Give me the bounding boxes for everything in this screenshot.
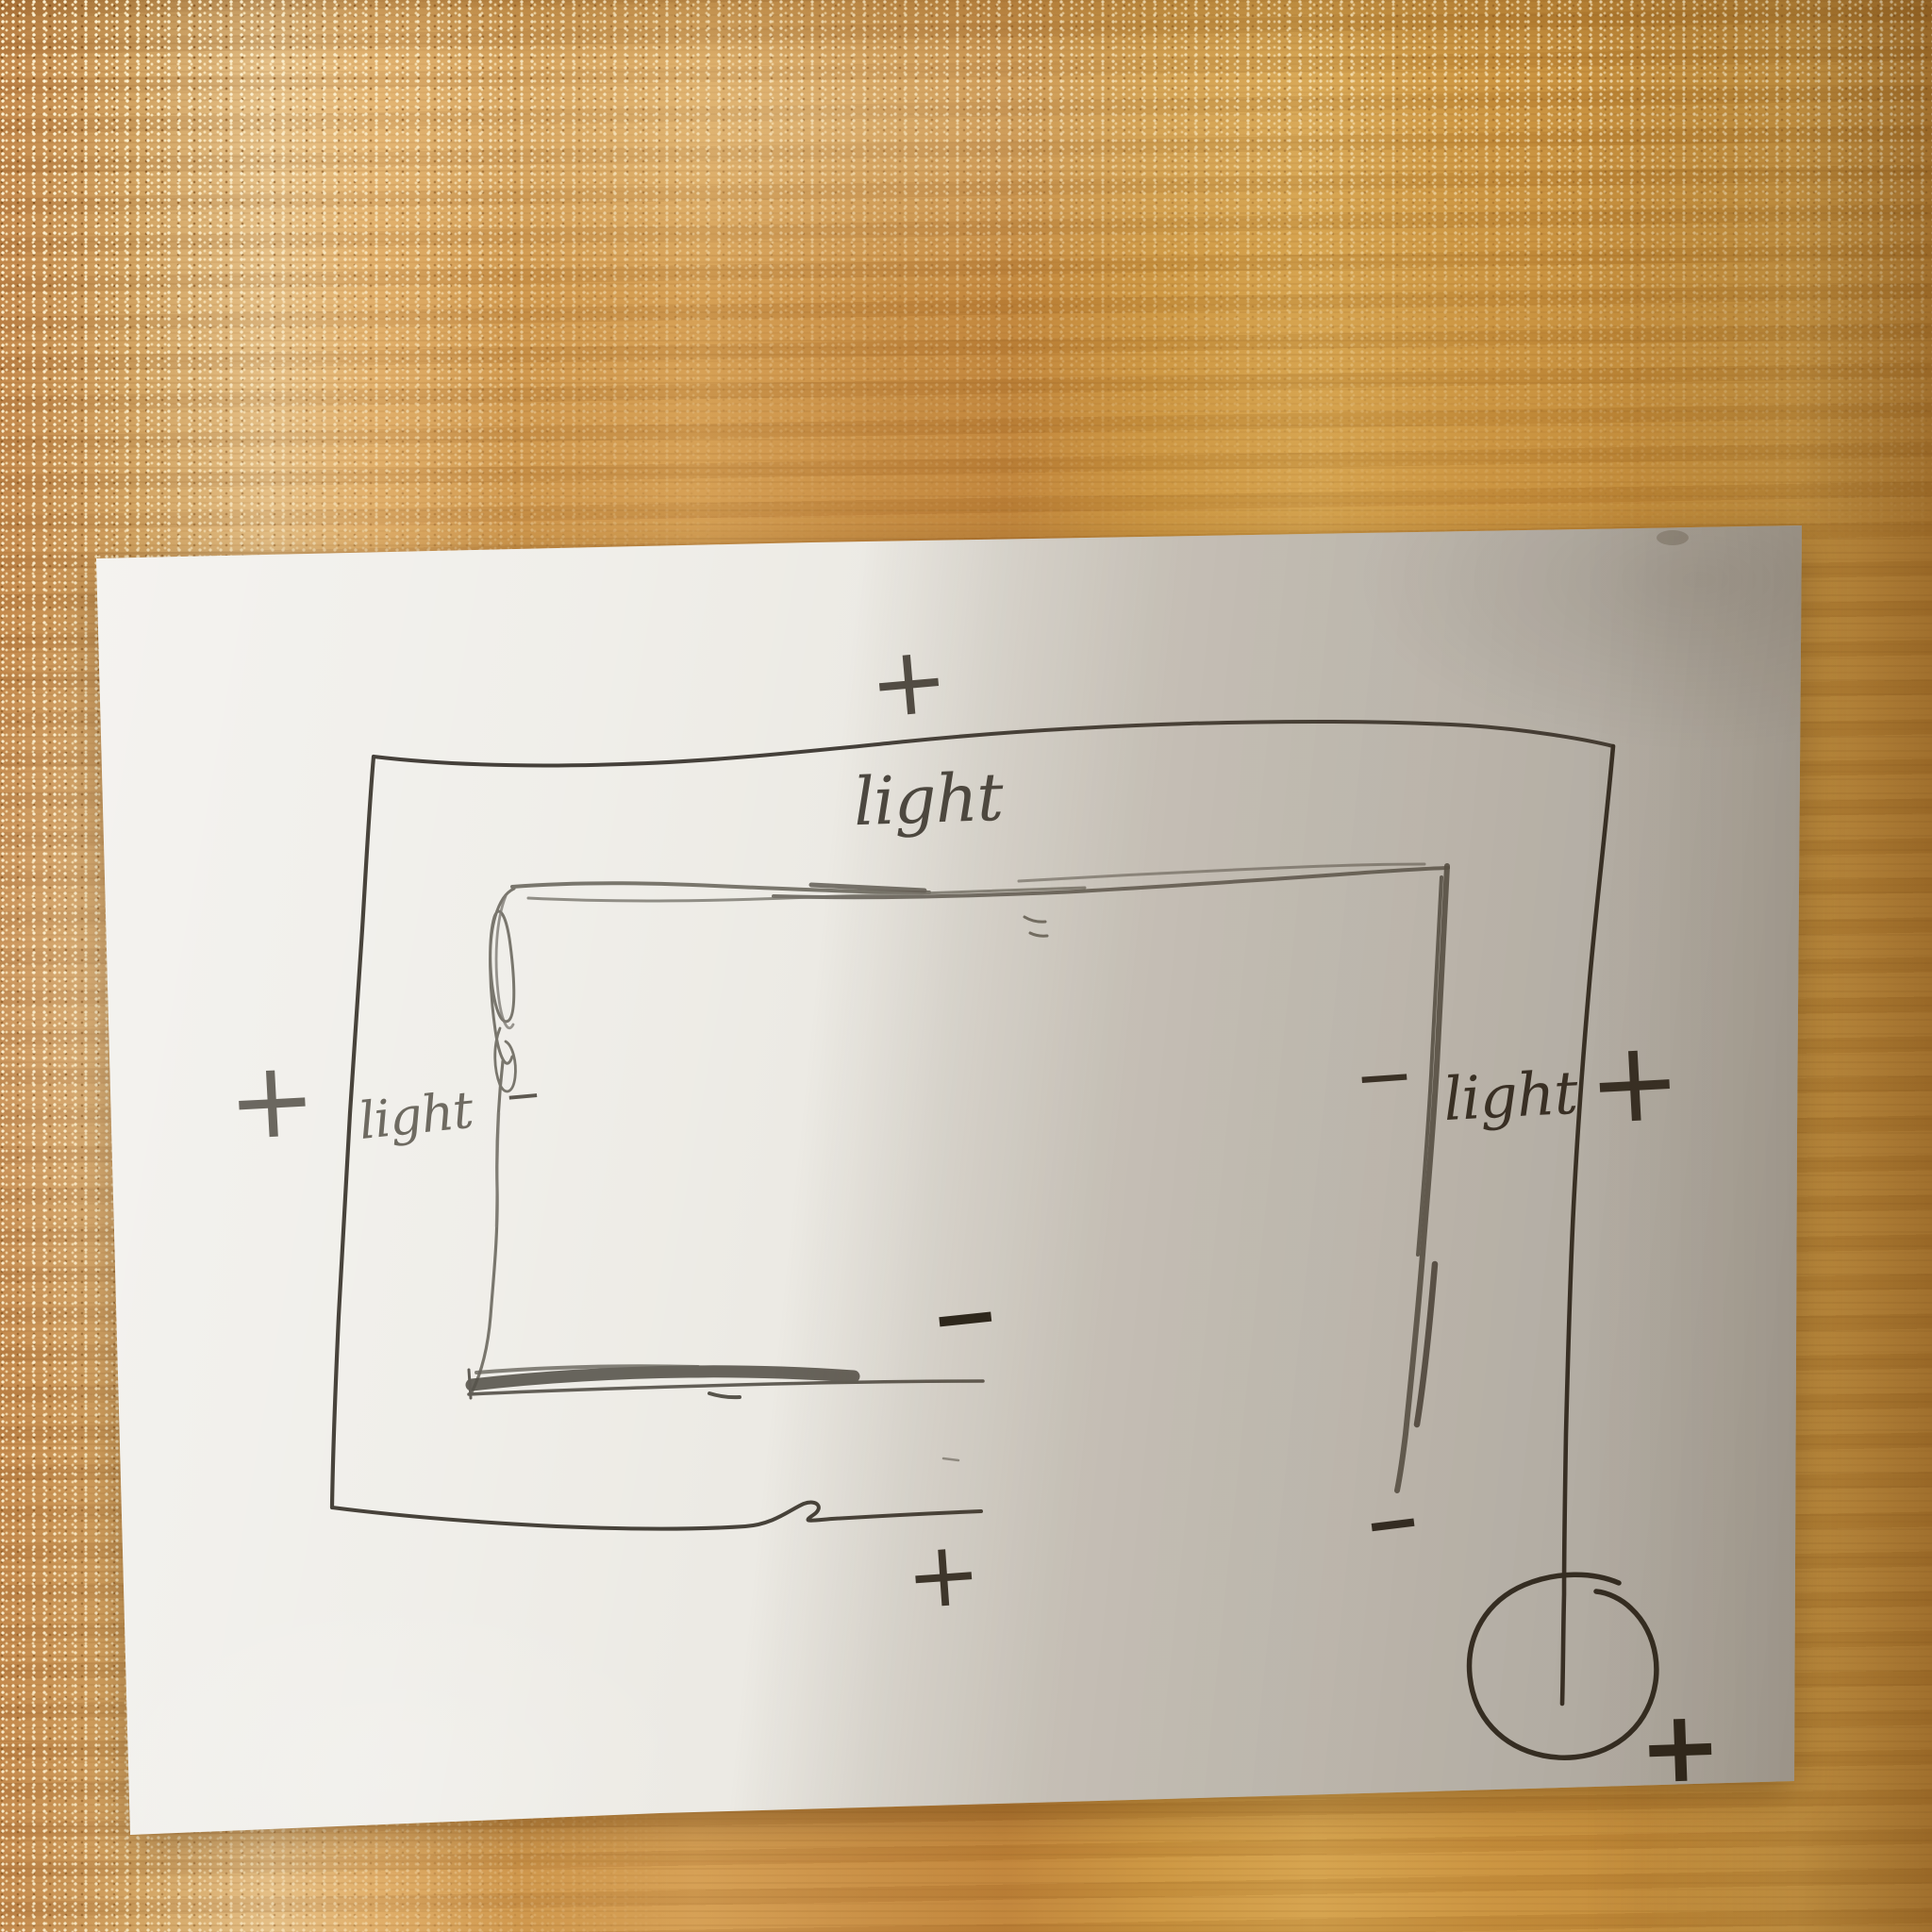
sign-plus-bottom-right: + bbox=[1637, 1688, 1724, 1806]
label-light-right: light bbox=[1441, 1058, 1580, 1134]
paper-smudges bbox=[1654, 530, 1689, 558]
sign-minus-bottom-right: − bbox=[1359, 1480, 1425, 1566]
sign-minus-right-inner: − bbox=[1351, 1032, 1417, 1120]
hand-drawn-circuit-sketch: light light light + + − − + − − + + bbox=[0, 0, 1932, 1932]
sign-minus-left-inner: − bbox=[502, 1068, 543, 1123]
inner-wire-loop bbox=[469, 864, 1448, 1491]
sign-plus-top-center: + bbox=[864, 624, 953, 741]
sign-minus-center: − bbox=[925, 1264, 1005, 1368]
sign-plus-right-outer: + bbox=[1585, 1015, 1685, 1150]
label-light-left: light bbox=[356, 1080, 476, 1151]
sign-plus-left-outer: + bbox=[225, 1038, 320, 1165]
desk-photo: light light light + + − − + − − + + bbox=[0, 0, 1932, 1932]
label-light-top: light bbox=[853, 758, 1006, 841]
sign-plus-bottom-center: + bbox=[903, 1521, 985, 1629]
